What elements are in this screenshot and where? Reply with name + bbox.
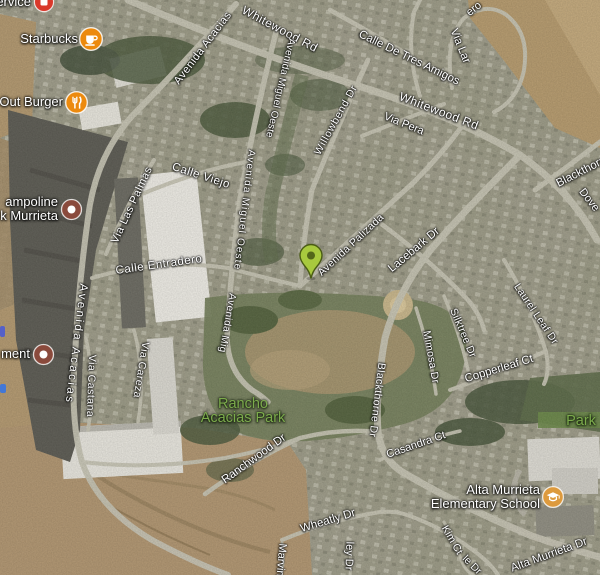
street-label: Avenida Mig	[216, 292, 237, 353]
rancho-acacias-park: Rancho Acacias Park	[201, 397, 286, 425]
poi-label: ment	[1, 347, 30, 362]
street-label: Casandra Ct	[385, 429, 447, 460]
street-label: Avenida Miguel Oeste	[231, 149, 257, 271]
dot-icon[interactable]	[32, 343, 55, 371]
street-label: Willowbend Dr	[312, 83, 360, 157]
street-label: Laurel Leaf Dr	[511, 281, 561, 346]
street-label: Blackthorne Dr	[554, 144, 600, 189]
street-label: le Dr	[460, 553, 484, 575]
street-label: Wheatly Dr	[299, 507, 357, 535]
street-label: Via Castana	[84, 355, 98, 418]
park-label-partial: Park	[566, 414, 596, 428]
street-label: Calle Viejo	[170, 161, 231, 191]
map-marker-pin[interactable]	[298, 243, 324, 286]
street-label: ley Dr	[343, 541, 356, 570]
restaurant-icon[interactable]	[64, 90, 89, 120]
partial-poi-icon	[0, 326, 5, 337]
street-label: Silktree Dr	[447, 307, 478, 360]
poi-label: ampoline k Murrieta	[0, 195, 58, 224]
street-label: ero	[464, 0, 484, 19]
poi-label: Starbucks	[20, 32, 78, 47]
street-label: Kim Ct	[439, 523, 465, 556]
red-box-icon[interactable]	[33, 0, 55, 18]
partial-poi-icon	[0, 384, 6, 393]
street-label: Ranchwood Dr	[220, 432, 289, 486]
poi-label: Alta Murrieta Elementary School	[431, 483, 540, 512]
satellite-map-canvas[interactable]: Whitewood RderoCalle De Tres AmigosVia L…	[0, 0, 600, 575]
street-label: Lacebark Dr	[386, 225, 442, 274]
street-label: Blackthorne Dr	[366, 362, 387, 438]
street-label: Avenida Acacias	[172, 9, 235, 87]
street-label: Via Las Palmas	[109, 165, 155, 246]
map-labels-layer: Whitewood RderoCalle De Tres AmigosVia L…	[0, 0, 600, 575]
dot-icon[interactable]	[60, 198, 83, 226]
street-label: Copperleaf Ct	[463, 353, 534, 385]
street-label: Avenida Palizada	[316, 211, 387, 278]
street-label: Avenida Miguel Oeste	[263, 37, 297, 139]
street-label: Via Pera	[382, 111, 425, 138]
street-label: Via Careza	[131, 341, 152, 399]
coffee-icon[interactable]	[78, 26, 104, 57]
poi-label: Out Burger	[0, 95, 63, 110]
street-label: Via Lar	[448, 27, 473, 65]
street-label: Mimosa Dr	[420, 330, 441, 385]
street-label: Whitewood Rd	[240, 3, 321, 55]
school-icon[interactable]	[541, 485, 565, 514]
street-label: Marvin	[274, 543, 289, 575]
street-label: Dove	[576, 186, 600, 214]
poi-label: ervice	[0, 0, 31, 9]
street-label: Calle De Tres Amigos	[357, 28, 462, 87]
street-label: Alta Murrieta Dr	[509, 536, 589, 575]
street-label: Calle Entradero	[115, 253, 203, 277]
